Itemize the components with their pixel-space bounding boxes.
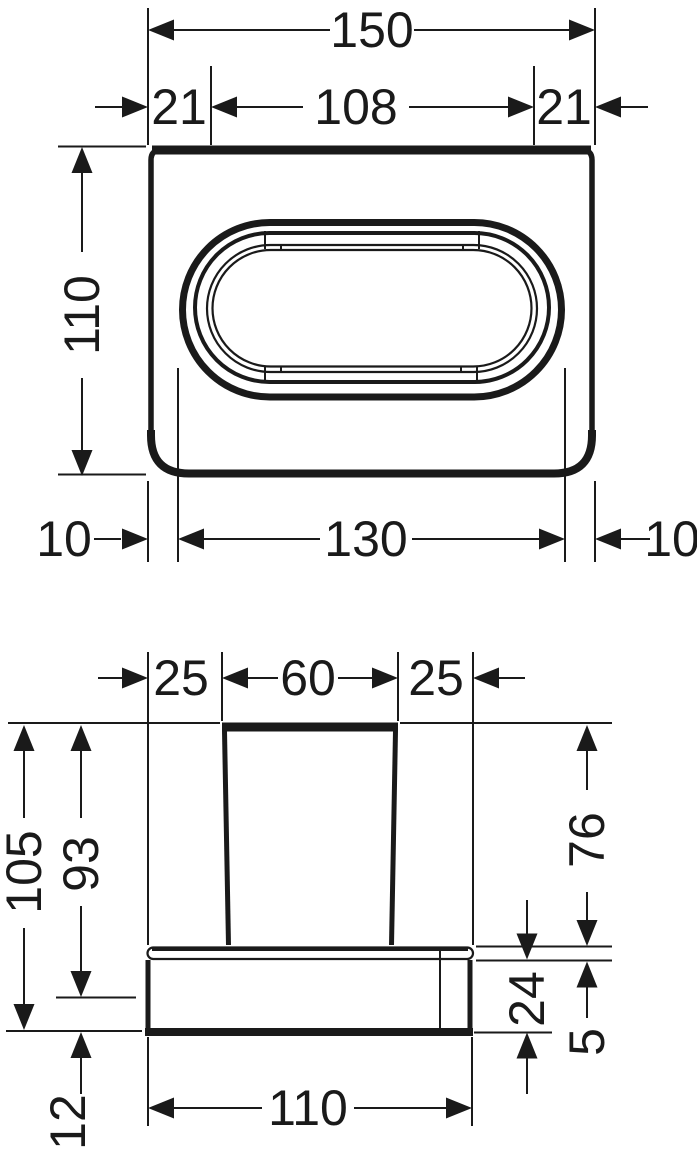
- plate-outline: [151, 150, 592, 474]
- dim-label-12: 12: [40, 1094, 96, 1149]
- dim-base-width: 110: [148, 1037, 472, 1136]
- arrowhead-up: [14, 725, 35, 751]
- dim-height-to-base: 93: [53, 725, 109, 997]
- top-view: 150 21 108 21 110 10: [36, 2, 697, 567]
- dim-base-height: 24: [499, 900, 555, 1094]
- dim-label-10-right: 10: [644, 511, 697, 567]
- front-view: 25 60 25 105: [0, 650, 615, 1149]
- cup-outline: [222, 727, 398, 945]
- arrowhead-right: [446, 1098, 472, 1119]
- technical-drawing-canvas: 150 21 108 21 110 10: [0, 0, 697, 1149]
- arrowhead-60-right: [372, 668, 398, 689]
- arrowhead-outside-right: [595, 529, 621, 550]
- dim-label-108: 108: [314, 79, 397, 135]
- dim-label-76: 76: [559, 812, 615, 868]
- plate-body: [151, 150, 592, 474]
- arrowhead-down: [71, 971, 92, 997]
- arrowhead-108-right: [508, 97, 534, 118]
- arrowhead-130-left: [178, 529, 204, 550]
- arrowhead-outside-left: [122, 529, 148, 550]
- dim-ledge-thickness: 5: [559, 962, 615, 1056]
- dim-label-25-right: 25: [408, 650, 464, 706]
- dim-label-110-base: 110: [268, 1080, 348, 1136]
- arrowhead-down: [72, 450, 93, 476]
- arrowhead-60-left: [222, 668, 248, 689]
- arrowhead-down: [14, 1004, 35, 1030]
- arrowhead-left: [148, 20, 174, 41]
- dim-label-25-left: 25: [153, 650, 209, 706]
- dim-offsets-row: 21 108 21: [95, 66, 648, 145]
- dim-total-height: 105: [0, 725, 52, 1030]
- wall-bracket: [145, 948, 473, 1033]
- dim-label-93: 93: [53, 836, 109, 892]
- cup-right-side: [392, 731, 396, 945]
- dim-plate-height: 110: [54, 147, 146, 477]
- dim-label-24: 24: [499, 971, 555, 1027]
- arrowhead-up: [577, 725, 598, 751]
- dim-label-21-right: 21: [536, 79, 592, 135]
- arrowhead-108-left: [211, 97, 237, 118]
- arrowhead-up: [71, 1032, 92, 1058]
- dim-label-150: 150: [330, 2, 413, 58]
- arrowhead-outside-right: [473, 668, 499, 689]
- dim-label-105: 105: [0, 830, 52, 913]
- dim-label-60: 60: [280, 650, 336, 706]
- dim-bottom-offset: 12: [40, 1032, 96, 1149]
- arrowhead-outside-left: [122, 97, 148, 118]
- dim-label-5: 5: [559, 1028, 615, 1056]
- dim-label-110: 110: [54, 275, 110, 355]
- arrowhead-right: [569, 20, 595, 41]
- dim-cup-row: 25 60 25: [98, 650, 525, 945]
- dim-label-21-left: 21: [151, 79, 207, 135]
- arrowhead-up: [577, 962, 598, 988]
- dim-label-130: 130: [324, 511, 407, 567]
- arrowhead-up: [72, 147, 93, 173]
- cup-left-side: [225, 731, 229, 945]
- arrowhead-up: [71, 725, 92, 751]
- arrowhead-left: [148, 1098, 174, 1119]
- dim-cup-height: 76: [559, 725, 615, 946]
- drawing-sheet: 150 21 108 21 110 10: [0, 0, 697, 1149]
- arrowhead-outside-right: [595, 97, 621, 118]
- dim-label-10-left: 10: [36, 511, 92, 567]
- arrowhead-130-right: [539, 529, 565, 550]
- arrowhead-outside-left: [122, 668, 148, 689]
- arrowhead-down: [577, 920, 598, 946]
- arrowhead-up: [517, 1033, 538, 1059]
